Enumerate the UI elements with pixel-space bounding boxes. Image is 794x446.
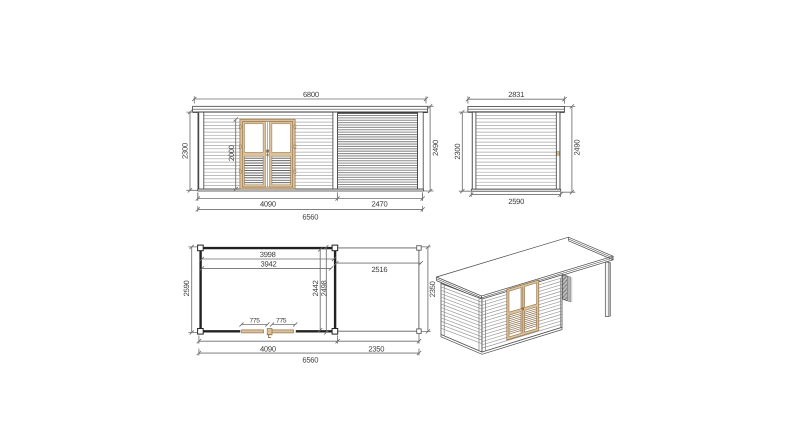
svg-text:3942: 3942 <box>261 260 277 269</box>
svg-text:3998: 3998 <box>260 250 276 259</box>
svg-text:6800: 6800 <box>303 90 319 99</box>
svg-text:2350: 2350 <box>428 281 437 297</box>
svg-text:2300: 2300 <box>453 144 462 160</box>
svg-text:2516: 2516 <box>371 265 387 274</box>
svg-text:6560: 6560 <box>302 356 318 365</box>
svg-text:775: 775 <box>276 317 287 324</box>
svg-text:2498: 2498 <box>319 280 328 296</box>
svg-text:775: 775 <box>249 317 260 324</box>
svg-text:4090: 4090 <box>260 344 276 353</box>
svg-text:2350: 2350 <box>368 344 384 353</box>
svg-text:4090: 4090 <box>260 200 276 209</box>
svg-text:2490: 2490 <box>573 140 582 156</box>
svg-text:6560: 6560 <box>302 213 318 222</box>
svg-text:2000: 2000 <box>227 145 236 161</box>
svg-text:2300: 2300 <box>180 143 189 159</box>
svg-text:2831: 2831 <box>508 90 524 99</box>
svg-text:2470: 2470 <box>372 200 388 209</box>
svg-text:2590: 2590 <box>508 197 524 206</box>
svg-text:2590: 2590 <box>182 280 191 296</box>
svg-text:2490: 2490 <box>431 140 440 156</box>
